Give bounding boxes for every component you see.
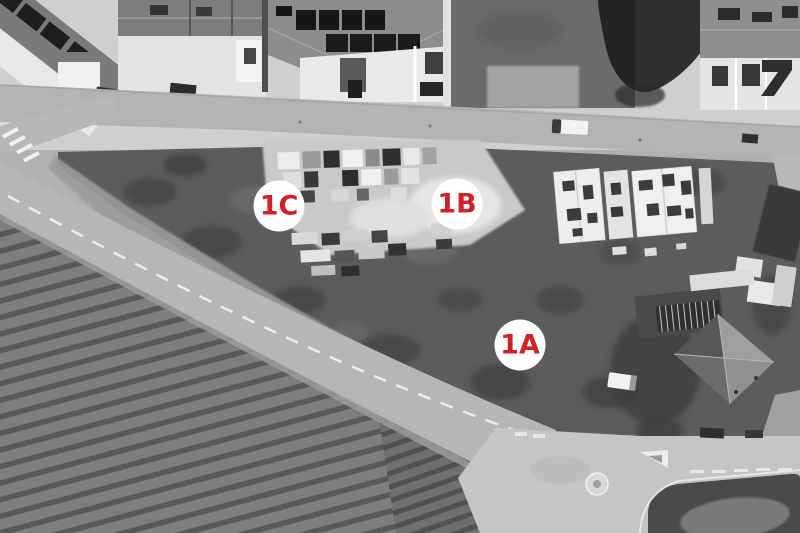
annotated-aerial-photo: 1C 1B 1A: [0, 0, 800, 533]
site-marker-1c[interactable]: 1C: [254, 181, 305, 232]
car: [742, 133, 759, 143]
site-marker-1b[interactable]: 1B: [432, 179, 483, 230]
houses-top-mid-left: [118, 0, 268, 98]
aerial-photo-art: [0, 0, 800, 533]
junction: [458, 426, 800, 533]
truck: [552, 119, 589, 135]
site-marker-1a[interactable]: 1A: [495, 320, 546, 371]
houses-top-right: [700, 0, 800, 110]
